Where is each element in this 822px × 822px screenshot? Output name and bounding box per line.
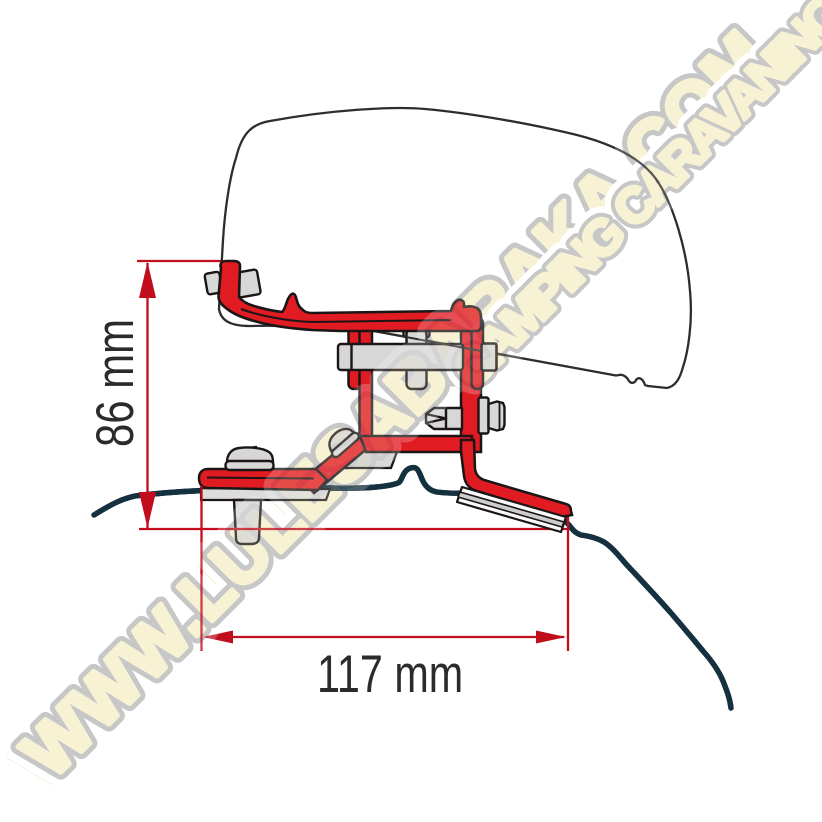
svg-text:86 mm: 86 mm bbox=[86, 319, 145, 447]
svg-text:117 mm: 117 mm bbox=[317, 645, 463, 704]
